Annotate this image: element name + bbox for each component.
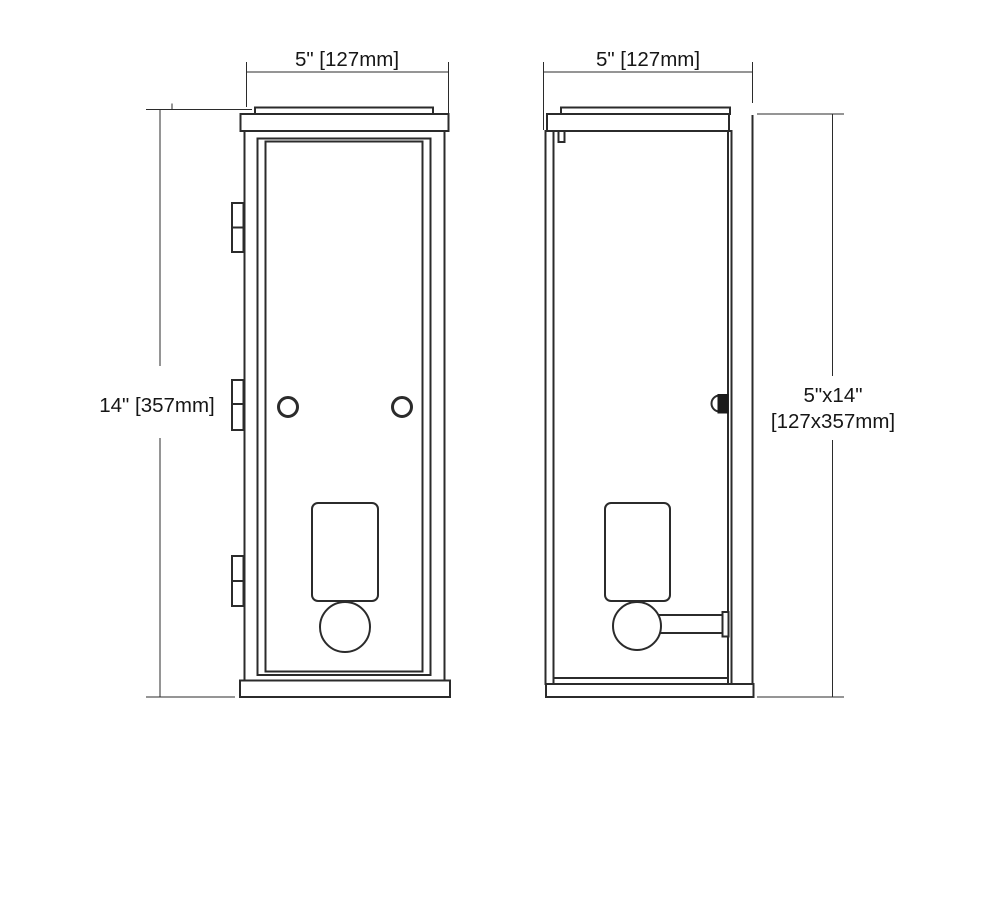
front-screw-hole-left [279, 398, 298, 417]
dimension-height: 14" [357mm] [99, 104, 252, 698]
side-socket [605, 503, 670, 601]
front-view [232, 108, 450, 698]
front-bulb [320, 602, 370, 652]
side-view [546, 108, 754, 698]
front-mounting-tab-middle [232, 380, 244, 430]
technical-drawing: 5" [127mm] 5" [127mm] 14" [357mm] 5"x14"… [0, 0, 1000, 904]
side-top-latch-tab [559, 131, 565, 142]
dimension-overall-size: 5"x14" [127x357mm] [757, 114, 895, 697]
overall-size-label-line1: 5"x14" [803, 384, 862, 407]
side-front-face [728, 131, 732, 684]
height-label: 14" [357mm] [99, 394, 215, 417]
front-screw-hole-right [393, 398, 412, 417]
front-width-label: 5" [127mm] [295, 48, 399, 71]
side-top-cap [547, 114, 729, 131]
front-socket [312, 503, 378, 601]
side-socket-arm-cap [723, 612, 729, 637]
front-mounting-tab-top [232, 203, 244, 252]
side-bottom-cap [546, 684, 754, 697]
front-top-cap [241, 114, 449, 131]
side-back-plate [546, 131, 554, 684]
front-bottom-cap [240, 681, 450, 698]
side-depth-label: 5" [127mm] [596, 48, 700, 71]
overall-size-label-line2: [127x357mm] [771, 410, 895, 433]
front-mounting-tab-bottom [232, 556, 244, 606]
drawing-canvas: 5" [127mm] 5" [127mm] 14" [357mm] 5"x14"… [0, 0, 1000, 904]
side-thumbscrew-knob [712, 395, 729, 414]
side-bulb [613, 602, 661, 650]
